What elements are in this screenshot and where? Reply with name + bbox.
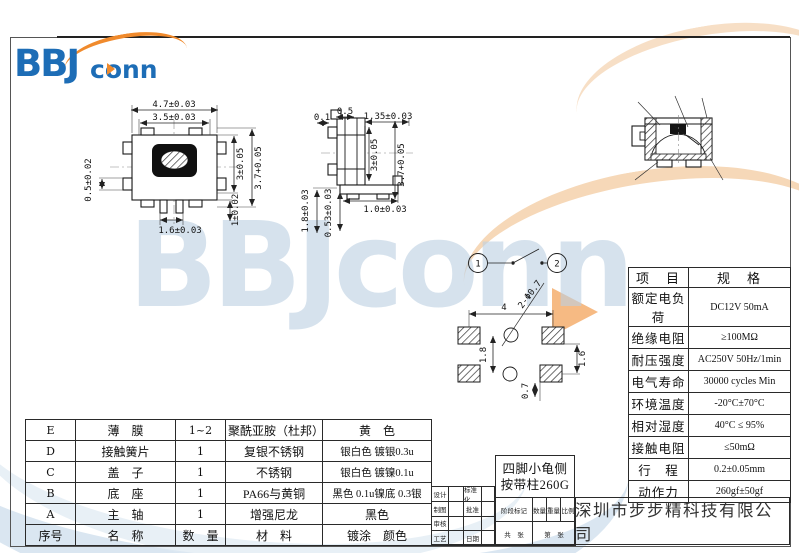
table-row: 电气寿命30000 cycles Min bbox=[629, 371, 791, 393]
dim-pad-right: 1.6 bbox=[578, 351, 588, 367]
drawing-sheet: BBJconn BBJ conn 4.7±0.03 3.5±0.03 bbox=[0, 0, 799, 553]
sign-label: 审核 bbox=[432, 517, 449, 532]
table-row: 绝缘电阻≥100MΩ bbox=[629, 327, 791, 349]
dim-side-t3: 1.35±0.03 bbox=[364, 112, 413, 122]
dim-right-inner-height: 3±0.05 bbox=[236, 148, 246, 181]
dim-side-t1: 0.1 bbox=[314, 113, 330, 123]
dim-side-l2: 0.53±0.03 bbox=[324, 189, 334, 238]
stage-grid: 阶段标记 数量 重量 比例 共 张 第 张 bbox=[495, 497, 575, 545]
dim-bottom-width: 1.6±0.03 bbox=[158, 226, 201, 236]
dim-side-h2: 3.7+0.05 bbox=[397, 143, 407, 186]
cross-section-drawing bbox=[630, 85, 780, 190]
dim-side-h1: 3±0.05 bbox=[370, 139, 380, 172]
bom-footer-row: 序号名 称数 量材 料镀涂 颜色 bbox=[26, 525, 432, 546]
table-row: 接触电阻≤50mΩ bbox=[629, 437, 791, 459]
dim-bottom-vertical: 1±0.02 bbox=[231, 194, 241, 227]
product-name-box: 四脚小龟侧 按带柱260G bbox=[495, 455, 575, 498]
sheet-count-label: 共 张 bbox=[496, 522, 533, 546]
spec-table: 项 目 规 格 额定电负荷DC12V 50mA 绝缘电阻≥100MΩ 耐压强度A… bbox=[628, 267, 791, 503]
dim-top-inner-width: 3.5±0.03 bbox=[152, 113, 195, 123]
sign-label: 设计 bbox=[432, 487, 449, 502]
dim-top-outer-width: 4.7±0.03 bbox=[152, 100, 195, 110]
dim-pad-width: 4 bbox=[501, 303, 506, 313]
table-row: D接触簧片1复银不锈钢银白色 镀银0.3u bbox=[26, 441, 432, 462]
logo-bbj-text: BBJ bbox=[14, 42, 78, 86]
top-view-drawing: 4.7±0.03 3.5±0.03 0.5±0.02 3±0.05 3.7+0.… bbox=[62, 92, 312, 272]
stage-label: 阶段标记 bbox=[496, 498, 533, 522]
dim-side-bottom: 1.0±0.03 bbox=[363, 205, 406, 215]
table-row: 额定电负荷DC12V 50mA bbox=[629, 288, 791, 327]
sign-label: 批准 bbox=[464, 502, 482, 517]
table-row: 相对湿度40°C ≤ 95% bbox=[629, 415, 791, 437]
dim-right-outer-height: 3.7+0.05 bbox=[254, 146, 264, 189]
sign-label bbox=[464, 517, 482, 532]
table-row: E薄 膜1~2聚酰亚胺（杜邦）黄 色 bbox=[26, 420, 432, 441]
table-row: 行 程0.2±0.05mm bbox=[629, 459, 791, 481]
spec-header-value: 规 格 bbox=[689, 268, 791, 288]
sign-label: 标准化 bbox=[464, 487, 482, 502]
circuit-pin-2: 2 bbox=[554, 260, 559, 270]
product-name-line2: 按带柱260G bbox=[501, 477, 570, 493]
product-name-line1: 四脚小龟侧 bbox=[502, 461, 567, 477]
stage-label: 重量 bbox=[547, 498, 561, 522]
sheet-number-label: 第 张 bbox=[533, 522, 576, 546]
spec-header-item: 项 目 bbox=[629, 268, 689, 288]
logo-conn-text: conn bbox=[90, 55, 158, 84]
sign-label: 日期 bbox=[464, 531, 482, 546]
dim-pad-holes: 2-Φ0.7 bbox=[517, 279, 545, 311]
dim-side-l1: 1.8±0.03 bbox=[301, 189, 311, 232]
signature-grid: 设计标准化 制图批准 审核 工艺日期 bbox=[431, 486, 495, 545]
logo-play-icon bbox=[107, 63, 115, 75]
bom-table: E薄 膜1~2聚酰亚胺（杜邦）黄 色 D接触簧片1复银不锈钢银白色 镀银0.3u… bbox=[25, 419, 432, 546]
sign-label: 工艺 bbox=[432, 531, 449, 546]
company-name: 深圳市步步精科技有限公司 bbox=[574, 497, 790, 545]
dim-left-offset: 0.5±0.02 bbox=[84, 158, 94, 201]
table-row: C盖 子1不锈钢银白色 镀镍0.1u bbox=[26, 462, 432, 483]
circuit-pin-1: 1 bbox=[475, 260, 480, 270]
stage-label: 数量 bbox=[533, 498, 547, 522]
company-logo: BBJ conn bbox=[14, 42, 189, 92]
dim-pad-bottom: 0.7 bbox=[521, 383, 531, 399]
actuator-hatch bbox=[162, 152, 188, 169]
side-view-drawing: 0.1 0.5 1.35±0.03 3±0.05 3.7+0.05 1.8±0.… bbox=[295, 95, 445, 245]
dim-pad-left: 1.8 bbox=[479, 347, 489, 363]
table-row: B底 座1PA66与黄铜黑色 0.1u镍底 0.3银 bbox=[26, 483, 432, 504]
pad-layout-drawing: 4 2-Φ0.7 1.8 1.6 0.7 bbox=[440, 280, 630, 430]
sign-label: 制图 bbox=[432, 502, 449, 517]
table-row: A主 轴1增强尼龙黑色 bbox=[26, 504, 432, 525]
table-row: 环境温度-20°C±70°C bbox=[629, 393, 791, 415]
dim-side-t2: 0.5 bbox=[337, 107, 353, 117]
table-row: 耐压强度AC250V 50Hz/1min bbox=[629, 349, 791, 371]
